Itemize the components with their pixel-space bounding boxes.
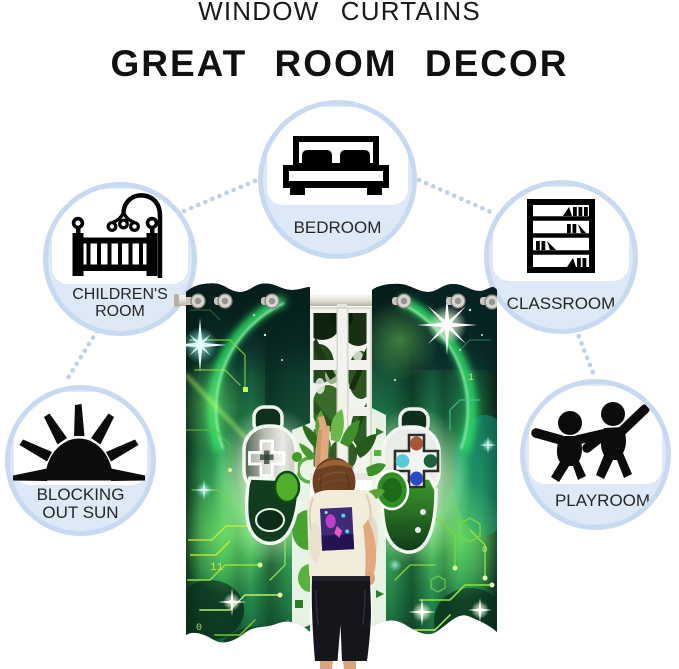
svg-text:0: 0 [482, 545, 487, 555]
svg-text:1: 1 [273, 645, 278, 655]
svg-text:11: 11 [210, 562, 224, 574]
svg-text:0: 0 [196, 623, 202, 634]
svg-text:1: 1 [468, 373, 474, 384]
